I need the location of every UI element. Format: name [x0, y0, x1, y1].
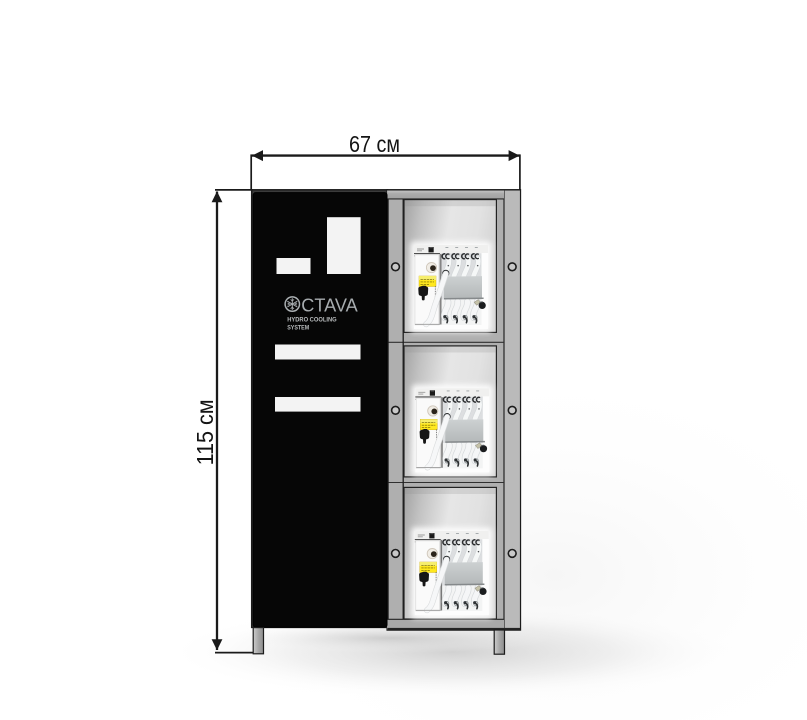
svg-text:HYDRO COOLING: HYDRO COOLING	[287, 317, 337, 324]
svg-text:CTAVA: CTAVA	[301, 295, 358, 315]
svg-text:67 см: 67 см	[349, 131, 400, 157]
svg-text:SYSTEM: SYSTEM	[287, 324, 309, 331]
svg-text:115 см: 115 см	[192, 399, 218, 465]
